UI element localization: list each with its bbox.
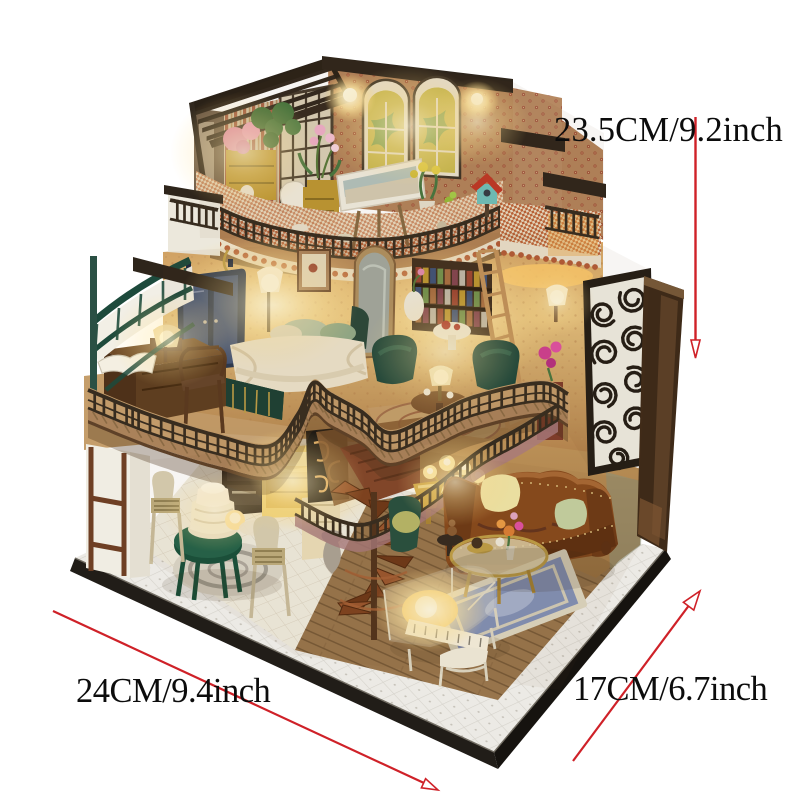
svg-text:24CM/9.4inch: 24CM/9.4inch: [76, 672, 271, 710]
svg-text:17CM/6.7inch: 17CM/6.7inch: [573, 670, 768, 708]
svg-text:23.5CM/9.2inch: 23.5CM/9.2inch: [554, 111, 783, 149]
